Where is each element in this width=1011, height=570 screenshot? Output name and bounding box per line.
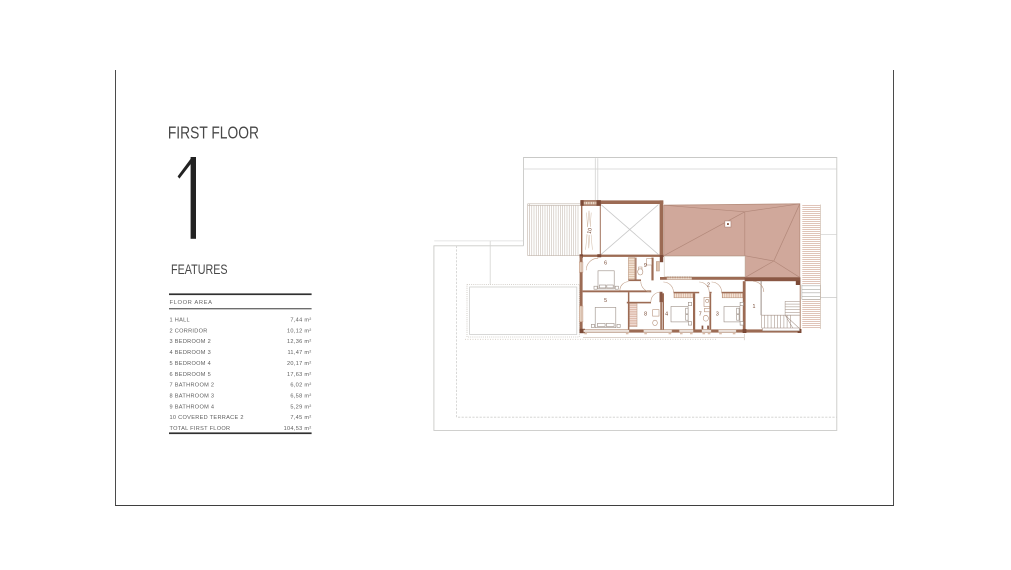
svg-text:1 HALL: 1 HALL: [170, 318, 190, 324]
svg-text:7,44 m²: 7,44 m²: [290, 318, 311, 324]
svg-text:20,17 m²: 20,17 m²: [287, 361, 311, 367]
svg-text:6,58 m²: 6,58 m²: [290, 394, 311, 400]
svg-text:6: 6: [604, 260, 607, 266]
svg-text:FLOOR AREA: FLOOR AREA: [170, 300, 213, 306]
svg-text:4: 4: [665, 311, 668, 317]
svg-text:7: 7: [699, 311, 702, 317]
svg-text:12,36 m²: 12,36 m²: [287, 339, 311, 345]
svg-text:5 BEDROOM 4: 5 BEDROOM 4: [170, 361, 212, 367]
svg-text:8 BATHROOM 3: 8 BATHROOM 3: [170, 394, 215, 400]
svg-text:TOTAL FIRST FLOOR: TOTAL FIRST FLOOR: [170, 426, 231, 432]
svg-text:FEATURES: FEATURES: [171, 262, 227, 278]
svg-text:1: 1: [753, 304, 756, 310]
svg-text:2 CORRIDOR: 2 CORRIDOR: [170, 328, 208, 334]
svg-text:4 BEDROOM 3: 4 BEDROOM 3: [170, 350, 212, 356]
svg-text:3: 3: [716, 311, 719, 317]
svg-text:10 COVERED TERRACE 2: 10 COVERED TERRACE 2: [170, 415, 244, 421]
svg-text:9: 9: [644, 263, 647, 269]
svg-text:17,63 m²: 17,63 m²: [287, 372, 311, 378]
svg-text:6,02 m²: 6,02 m²: [290, 383, 311, 389]
svg-text:5,29 m²: 5,29 m²: [290, 404, 311, 410]
svg-text:11,47 m²: 11,47 m²: [287, 350, 311, 356]
svg-text:7 BATHROOM 2: 7 BATHROOM 2: [170, 383, 215, 389]
svg-text:7,45 m²: 7,45 m²: [290, 415, 311, 421]
svg-text:104,53 m²: 104,53 m²: [284, 426, 312, 432]
svg-text:6 BEDROOM 5: 6 BEDROOM 5: [170, 372, 212, 378]
svg-text:9 BATHROOM 4: 9 BATHROOM 4: [170, 404, 215, 410]
svg-text:2: 2: [707, 282, 710, 288]
svg-text:10,12 m²: 10,12 m²: [287, 328, 311, 334]
svg-text:10: 10: [587, 227, 594, 234]
svg-text:8: 8: [644, 311, 647, 317]
svg-text:3 BEDROOM 2: 3 BEDROOM 2: [170, 339, 212, 345]
svg-text:5: 5: [604, 298, 607, 304]
svg-text:FIRST FLOOR: FIRST FLOOR: [168, 124, 259, 143]
